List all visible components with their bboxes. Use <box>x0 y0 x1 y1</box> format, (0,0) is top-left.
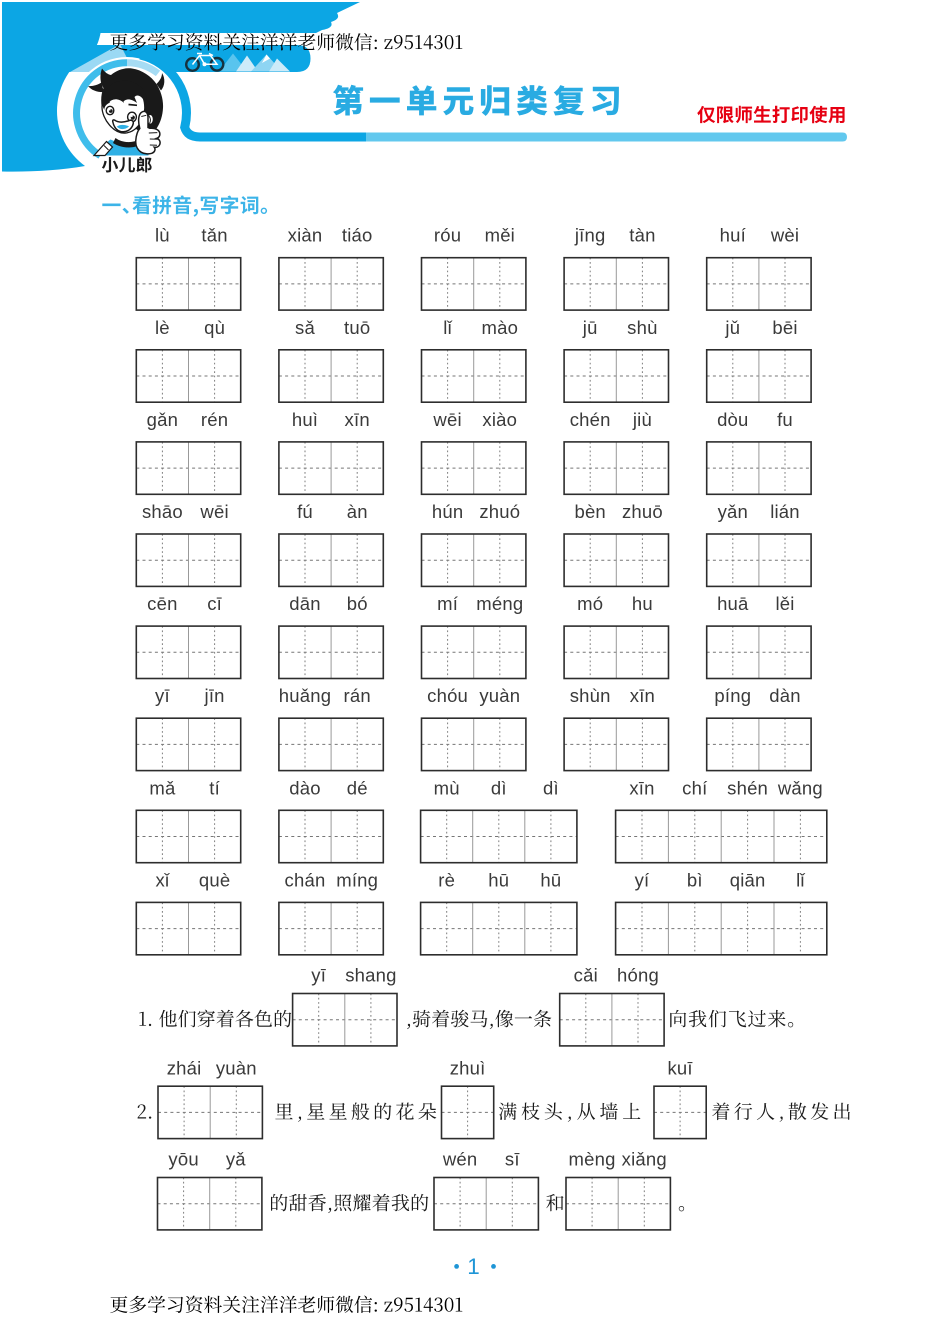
svg-text:sī: sī <box>505 1149 520 1170</box>
svg-text:què: què <box>199 869 230 890</box>
svg-text:shùn: shùn <box>570 685 611 706</box>
svg-text:chán: chán <box>285 869 326 890</box>
svg-text:zhái: zhái <box>167 1057 202 1078</box>
svg-text:mào: mào <box>482 317 519 338</box>
svg-text:shāo: shāo <box>142 501 183 522</box>
svg-text:fú: fú <box>297 501 313 522</box>
svg-text:yǎn: yǎn <box>718 501 748 522</box>
svg-text:qù: qù <box>204 317 225 338</box>
svg-text:lěi: lěi <box>775 593 794 614</box>
svg-text:sǎ: sǎ <box>295 317 315 338</box>
svg-text:xiàn: xiàn <box>288 225 323 246</box>
svg-text:chóu: chóu <box>427 685 468 706</box>
svg-text:huǎng: huǎng <box>279 685 331 706</box>
svg-text:wén: wén <box>442 1149 478 1170</box>
svg-text:dòu: dòu <box>717 409 748 430</box>
svg-text:lǐ: lǐ <box>443 317 452 338</box>
svg-text:dé: dé <box>347 777 368 798</box>
svg-text:shang: shang <box>345 965 396 986</box>
svg-text:jīn: jīn <box>204 685 225 706</box>
svg-text:huā: huā <box>717 593 749 614</box>
svg-text:hóng: hóng <box>617 965 659 986</box>
svg-text:zhuó: zhuó <box>479 501 520 522</box>
svg-text:dān: dān <box>289 593 320 614</box>
svg-text:wèi: wèi <box>770 225 799 246</box>
svg-text:míng: míng <box>336 869 378 890</box>
svg-text:mèng: mèng <box>569 1149 616 1170</box>
svg-text:jǔ: jǔ <box>724 317 740 338</box>
svg-text:hu: hu <box>632 593 653 614</box>
svg-text:lè: lè <box>155 317 170 338</box>
svg-text:rè: rè <box>438 869 455 890</box>
svg-text:rán: rán <box>344 685 371 706</box>
svg-text:yí: yí <box>635 869 650 890</box>
svg-text:mí: mí <box>437 593 459 614</box>
svg-text:yuàn: yuàn <box>479 685 520 706</box>
svg-text:chí: chí <box>682 777 708 798</box>
svg-text:zhuō: zhuō <box>622 501 663 522</box>
svg-text:xǐ: xǐ <box>156 869 170 890</box>
svg-text:huì: huì <box>292 409 318 430</box>
svg-text:tàn: tàn <box>629 225 655 246</box>
svg-text:dì: dì <box>543 777 559 798</box>
svg-text:dào: dào <box>289 777 320 798</box>
svg-text:cǎi: cǎi <box>574 965 598 986</box>
svg-text:zhuì: zhuì <box>450 1057 486 1078</box>
svg-text:méng: méng <box>476 593 523 614</box>
svg-text:yuàn: yuàn <box>216 1057 257 1078</box>
svg-text:lù: lù <box>155 225 170 246</box>
svg-text:xīn: xīn <box>629 777 654 798</box>
svg-text:shén: shén <box>727 777 768 798</box>
svg-text:xīn: xīn <box>630 685 655 706</box>
svg-text:cī: cī <box>207 593 222 614</box>
svg-text:bó: bó <box>347 593 368 614</box>
svg-text:qiān: qiān <box>730 869 766 890</box>
svg-text:lǐ: lǐ <box>796 869 805 890</box>
svg-text:àn: àn <box>347 501 368 522</box>
svg-text:shù: shù <box>627 317 657 338</box>
svg-text:tiáo: tiáo <box>342 225 373 246</box>
svg-text:wǎng: wǎng <box>777 777 823 798</box>
svg-text:róu: róu <box>434 225 461 246</box>
svg-text:chén: chén <box>570 409 611 430</box>
svg-text:jiù: jiù <box>632 409 652 430</box>
svg-text:mǎ: mǎ <box>149 777 176 798</box>
svg-text:fu: fu <box>777 409 793 430</box>
svg-text:hū: hū <box>540 869 561 890</box>
svg-text:mù: mù <box>434 777 460 798</box>
svg-text:wēi: wēi <box>199 501 228 522</box>
svg-text:bēi: bēi <box>772 317 797 338</box>
svg-text:bì: bì <box>687 869 703 890</box>
svg-text:kuī: kuī <box>667 1057 693 1078</box>
svg-text:mó: mó <box>577 593 603 614</box>
svg-text:jīng: jīng <box>574 225 606 246</box>
svg-text:cēn: cēn <box>147 593 177 614</box>
svg-text:yī: yī <box>155 685 170 706</box>
svg-text:gǎn: gǎn <box>147 409 178 430</box>
svg-text:dàn: dàn <box>769 685 800 706</box>
svg-text:wēi: wēi <box>432 409 461 430</box>
svg-text:xīn: xīn <box>345 409 370 430</box>
svg-text:dì: dì <box>491 777 507 798</box>
svg-text:lián: lián <box>770 501 800 522</box>
svg-text:bèn: bèn <box>574 501 605 522</box>
svg-text:yī: yī <box>311 965 326 986</box>
svg-text:xiào: xiào <box>482 409 517 430</box>
svg-text:yōu: yōu <box>168 1149 198 1170</box>
svg-text:xiǎng: xiǎng <box>622 1149 667 1170</box>
svg-text:píng: píng <box>714 685 751 706</box>
svg-text:hū: hū <box>488 869 509 890</box>
svg-text:yǎ: yǎ <box>226 1149 246 1170</box>
svg-text:hún: hún <box>432 501 463 522</box>
svg-text:měi: měi <box>485 225 515 246</box>
svg-text:tuō: tuō <box>344 317 370 338</box>
svg-text:rén: rén <box>201 409 228 430</box>
svg-text:tǎn: tǎn <box>201 225 227 246</box>
svg-text:tí: tí <box>209 777 220 798</box>
svg-text:huí: huí <box>720 225 747 246</box>
svg-text:jū: jū <box>582 317 598 338</box>
svg-text:1: 1 <box>467 1254 480 1279</box>
